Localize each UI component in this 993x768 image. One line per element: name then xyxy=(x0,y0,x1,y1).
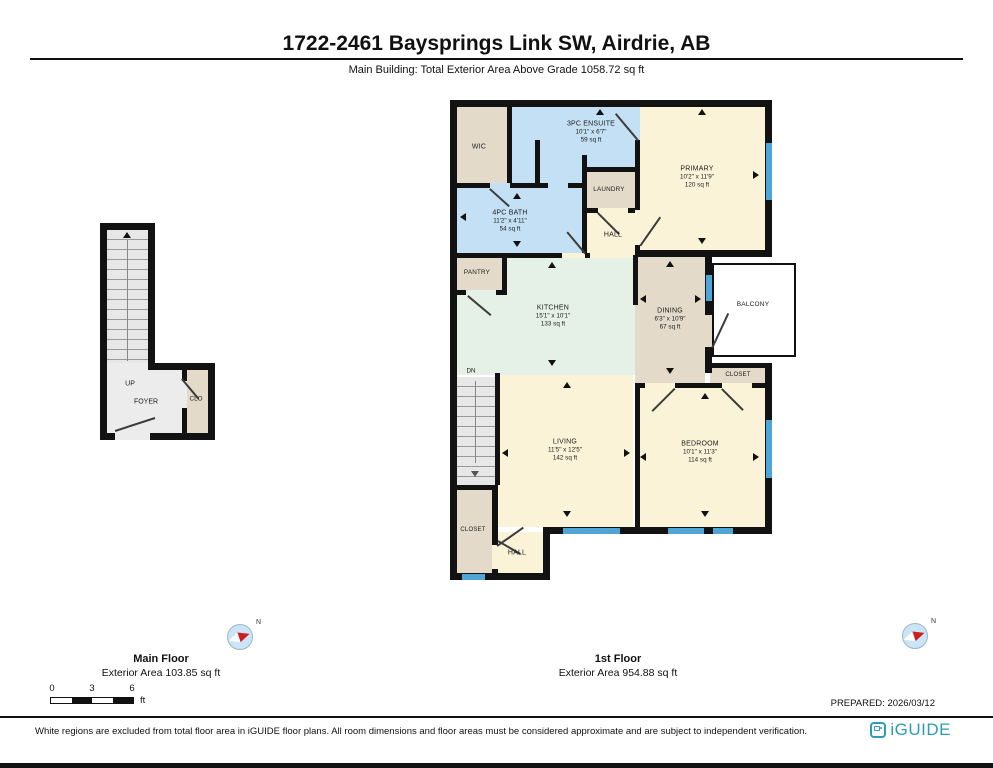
room-label-dining: DINING6'3" x 10'9"67 sq ft xyxy=(654,306,685,331)
wall-segment xyxy=(543,527,550,580)
main-floor-caption: Main Floor Exterior Area 103.85 sq ft xyxy=(102,653,220,679)
dimension-arrow xyxy=(695,295,701,303)
floor-plan-page: { "header": { "title": "1722-2461 Bayspr… xyxy=(0,0,993,768)
room-label-laundry: LAUNDRY xyxy=(593,186,624,194)
room-label-hall-upper: HALL xyxy=(604,230,622,239)
door-opening xyxy=(635,210,640,245)
wall-segment xyxy=(450,485,498,490)
stairs-direction-label: UP xyxy=(125,381,135,388)
compass-icon: N xyxy=(227,624,253,650)
window-marker xyxy=(766,143,772,200)
room-label-closet-upper: CLOSET xyxy=(725,372,750,380)
wall-segment xyxy=(495,373,500,485)
stairs-direction-label: DN xyxy=(466,368,475,375)
page-title: 1722-2461 Baysprings Link SW, Airdrie, A… xyxy=(0,32,993,56)
iguide-logo: iGUIDE xyxy=(870,720,951,740)
wall-segment xyxy=(148,363,215,370)
stairs-up-arrow xyxy=(123,232,131,238)
door-opening xyxy=(635,107,640,140)
room-label-clo: CLO xyxy=(190,396,203,403)
first-floor-caption-title: 1st Floor xyxy=(559,653,677,665)
room-label-ensuite: 3PC ENSUITE10'1" x 6'7"59 sq ft xyxy=(567,119,615,144)
main-floor-caption-area: Exterior Area 103.85 sq ft xyxy=(102,667,220,679)
dimension-arrow xyxy=(460,213,466,221)
compass-icon: N xyxy=(902,623,928,649)
dimension-arrow xyxy=(701,393,709,399)
dimension-arrow xyxy=(548,262,556,268)
door-opening xyxy=(645,383,675,388)
dimension-arrow xyxy=(753,453,759,461)
window-marker xyxy=(668,528,704,534)
dimension-arrow xyxy=(596,109,604,115)
scale-tick: 6 xyxy=(129,683,134,694)
window-marker xyxy=(766,420,772,478)
footer-disclaimer: White regions are excluded from total fl… xyxy=(35,726,807,737)
title-divider xyxy=(30,58,963,60)
scale-bar: 0 3 6 ft xyxy=(46,683,156,707)
wall-segment xyxy=(502,258,507,290)
dimension-arrow xyxy=(548,360,556,366)
stairs-down xyxy=(457,377,495,485)
wall-segment xyxy=(535,140,540,188)
window-marker xyxy=(713,528,733,534)
room-label-hall-lower: HALL xyxy=(508,548,526,557)
compass-north-label: N xyxy=(931,618,936,625)
footer-divider xyxy=(0,716,993,718)
iguide-wordmark: iGUIDE xyxy=(890,720,951,740)
dimension-arrow xyxy=(753,171,759,179)
room-label-bath: 4PC BATH11'2" x 4'11"54 sq ft xyxy=(492,208,527,233)
door-opening xyxy=(492,545,498,569)
scale-bar-segments xyxy=(50,697,134,704)
room-label-foyer: FOYER xyxy=(134,399,158,406)
bottom-border xyxy=(0,763,993,768)
door-opening xyxy=(722,383,752,388)
dimension-arrow xyxy=(640,453,646,461)
dimension-arrow xyxy=(666,368,674,374)
first-floor-plan: WIC 3PC ENSUITE10'1" x 6'7"59 sq ft PRIM… xyxy=(450,95,800,592)
dimension-arrow xyxy=(701,511,709,517)
wall-segment xyxy=(705,250,712,373)
room-balcony xyxy=(712,263,796,357)
wall-segment xyxy=(100,223,155,230)
door-opening xyxy=(598,208,628,213)
dimension-arrow xyxy=(563,511,571,517)
stairs-down-arrow xyxy=(471,471,479,477)
room-label-closet-lower: CLOSET xyxy=(460,527,485,535)
wall-segment xyxy=(507,107,512,183)
door-opening xyxy=(705,315,712,347)
dimension-arrow xyxy=(563,382,571,388)
dimension-arrow xyxy=(698,109,706,115)
dimension-arrow xyxy=(513,241,521,247)
scale-unit: ft xyxy=(140,695,145,706)
wall-segment xyxy=(450,100,457,580)
scale-tick: 0 xyxy=(49,683,54,694)
dimension-arrow xyxy=(502,449,508,457)
room-label-bedroom: BEDROOM10'1" x 11'3"114 sq ft xyxy=(681,439,719,464)
door-opening xyxy=(115,433,150,440)
wall-segment xyxy=(635,250,772,257)
first-floor-caption: 1st Floor Exterior Area 954.88 sq ft xyxy=(559,653,677,679)
wall-segment xyxy=(100,223,107,440)
door-opening xyxy=(562,253,585,258)
room-label-primary: PRIMARY10'2" x 11'9"120 sq ft xyxy=(680,164,714,189)
iguide-icon xyxy=(870,722,886,738)
window-marker xyxy=(563,528,620,534)
door-opening xyxy=(466,290,496,295)
wall-segment xyxy=(705,363,772,368)
wall-segment xyxy=(450,100,772,107)
room-label-living: LIVING11'5" x 12'5"142 sq ft xyxy=(548,437,582,462)
door-opening xyxy=(490,183,510,188)
first-floor-caption-area: Exterior Area 954.88 sq ft xyxy=(559,667,677,679)
window-marker xyxy=(462,574,485,580)
wall-segment xyxy=(582,167,640,172)
compass-north-label: N xyxy=(256,619,261,626)
room-label-balcony: BALCONY xyxy=(737,301,769,309)
dimension-arrow xyxy=(624,449,630,457)
room-label-pantry: PANTRY xyxy=(464,269,490,277)
wall-segment xyxy=(148,223,155,370)
scale-tick: 3 xyxy=(89,683,94,694)
prepared-date: PREPARED: 2026/03/12 xyxy=(831,698,935,709)
wall-segment xyxy=(512,183,548,188)
room-label-kitchen: KITCHEN15'1" x 10'1"133 sq ft xyxy=(536,303,571,328)
main-floor-plan: UP FOYER CLO xyxy=(100,223,215,440)
window-marker xyxy=(706,275,712,301)
stair-rail xyxy=(127,240,128,361)
dimension-arrow xyxy=(698,238,706,244)
room-label-wic: WIC xyxy=(472,142,486,151)
main-floor-caption-title: Main Floor xyxy=(102,653,220,665)
dimension-arrow xyxy=(513,193,521,199)
wall-segment xyxy=(633,255,638,305)
dimension-arrow xyxy=(666,261,674,267)
page-subtitle: Main Building: Total Exterior Area Above… xyxy=(0,64,993,76)
wall-segment xyxy=(208,363,215,440)
stair-rail xyxy=(475,381,476,463)
dimension-arrow xyxy=(640,295,646,303)
